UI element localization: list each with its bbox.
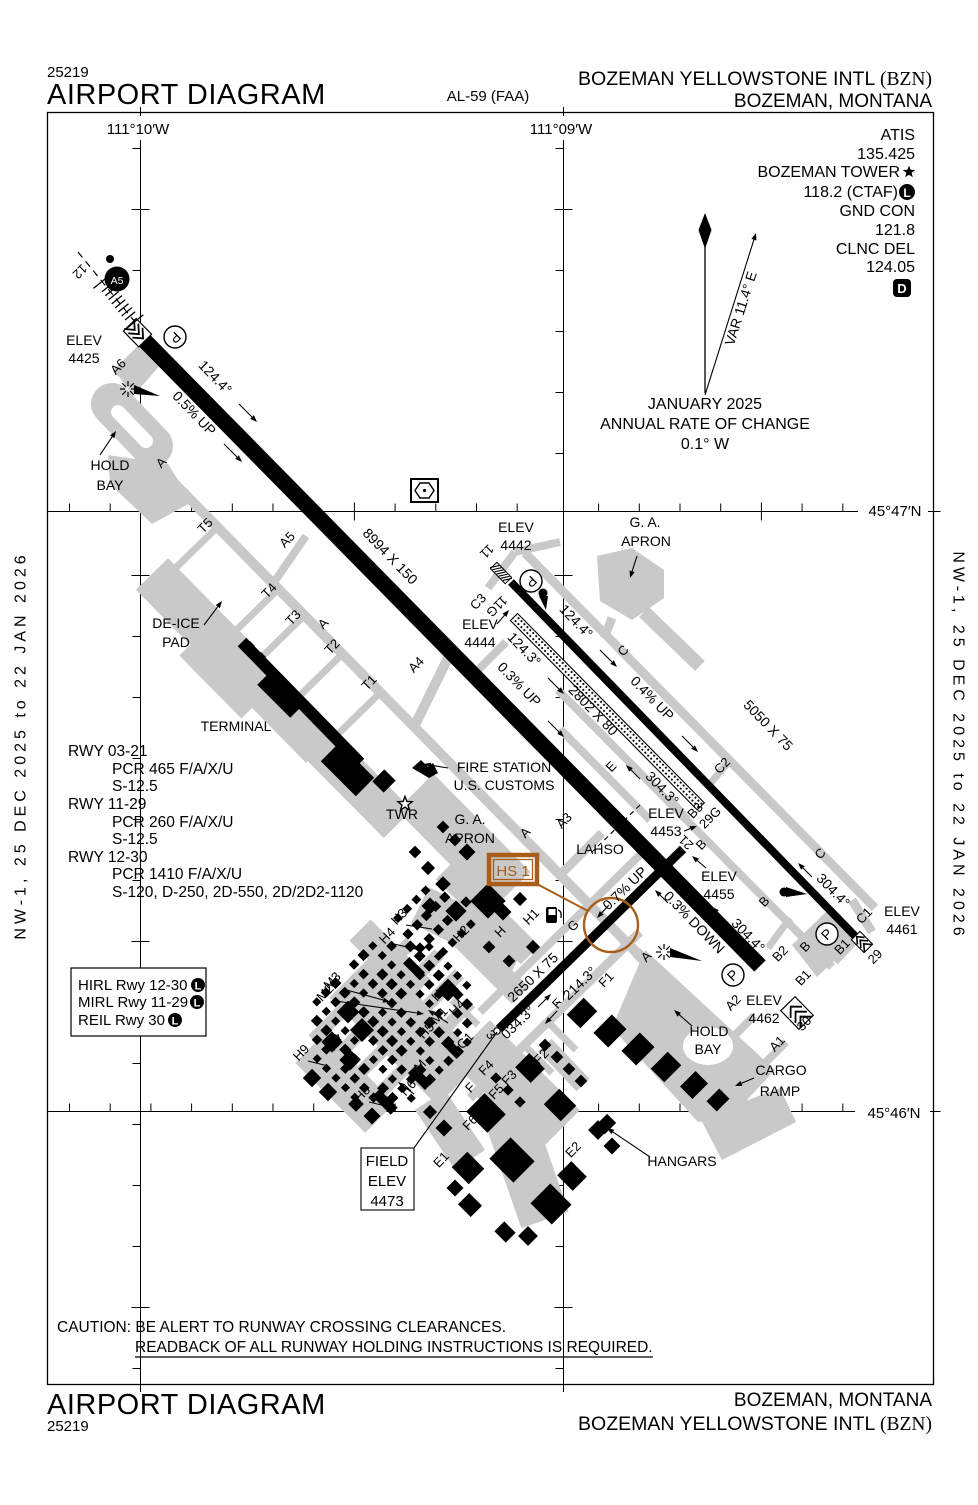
svg-text:REIL Rwy 30: REIL Rwy 30 — [78, 1012, 165, 1029]
svg-text:JANUARY 2025: JANUARY 2025 — [648, 396, 762, 413]
svg-text:4425: 4425 — [68, 350, 99, 366]
svg-text:ELEV: ELEV — [368, 1173, 406, 1190]
svg-text:G. A.: G. A. — [454, 811, 485, 827]
svg-text:RAMP: RAMP — [760, 1083, 800, 1099]
svg-text:S-120, D-250, 2D-550, 2D/2D2-1: S-120, D-250, 2D-550, 2D/2D2-1120 — [112, 884, 364, 901]
svg-text:U.S. CUSTOMS: U.S. CUSTOMS — [454, 777, 555, 793]
svg-text:ELEV: ELEV — [746, 992, 782, 1008]
svg-text:AIRPORT DIAGRAM: AIRPORT DIAGRAM — [47, 79, 326, 111]
svg-text:MIRL Rwy 11-29: MIRL Rwy 11-29 — [78, 994, 188, 1011]
svg-text:45°46′N: 45°46′N — [867, 1105, 920, 1122]
svg-text:ELEV: ELEV — [648, 805, 684, 821]
svg-text:APRON: APRON — [621, 533, 671, 549]
svg-text:HOLD: HOLD — [91, 457, 130, 473]
svg-text:L: L — [195, 981, 202, 993]
svg-text:FIRE STATION: FIRE STATION — [457, 759, 551, 775]
svg-text:G. A.: G. A. — [629, 514, 660, 530]
svg-text:25219: 25219 — [47, 1418, 89, 1435]
svg-text:L: L — [903, 186, 910, 200]
svg-text:ELEV: ELEV — [701, 868, 737, 884]
svg-text:CLNC DEL: CLNC DEL — [836, 241, 915, 258]
svg-text:S-12.5: S-12.5 — [112, 778, 158, 795]
svg-text:CARGO: CARGO — [755, 1062, 806, 1078]
svg-text:BOZEMAN TOWER: BOZEMAN TOWER — [757, 164, 900, 181]
svg-text:BAY: BAY — [695, 1041, 723, 1057]
svg-text:RWY 11-29: RWY 11-29 — [68, 796, 146, 813]
svg-text:L: L — [194, 998, 201, 1010]
svg-text:ANNUAL RATE OF CHANGE: ANNUAL RATE OF CHANGE — [600, 416, 810, 433]
svg-text:READBACK OF ALL RUNWAY HOLDING: READBACK OF ALL RUNWAY HOLDING INSTRUCTI… — [135, 1339, 653, 1356]
svg-text:PAD: PAD — [162, 634, 190, 650]
svg-text:4473: 4473 — [370, 1193, 403, 1210]
svg-text:PCR 1410 F/A/X/U: PCR 1410 F/A/X/U — [112, 866, 242, 883]
svg-text:PCR 260 F/A/X/U: PCR 260 F/A/X/U — [112, 814, 233, 831]
svg-text:A5: A5 — [111, 275, 124, 287]
svg-text:HOLD: HOLD — [690, 1023, 729, 1039]
svg-text:DE-ICE: DE-ICE — [152, 615, 199, 631]
svg-text:TERMINAL: TERMINAL — [201, 718, 272, 734]
svg-text:4461: 4461 — [886, 921, 917, 937]
svg-text:ELEV: ELEV — [884, 903, 920, 919]
svg-text:APRON: APRON — [445, 830, 495, 846]
svg-text:4442: 4442 — [500, 537, 531, 553]
svg-text:135.425: 135.425 — [857, 146, 915, 163]
svg-text:HS 1: HS 1 — [496, 863, 529, 880]
svg-text:BAY: BAY — [97, 477, 125, 493]
svg-text:L: L — [172, 1016, 179, 1028]
svg-text:AIRPORT DIAGRAM: AIRPORT DIAGRAM — [47, 1389, 326, 1421]
svg-text:D: D — [897, 281, 906, 296]
svg-text:S-12.5: S-12.5 — [112, 831, 158, 848]
svg-text:ELEV: ELEV — [498, 519, 534, 535]
svg-text:4455: 4455 — [703, 886, 734, 902]
svg-text:AL-59 (FAA): AL-59 (FAA) — [447, 88, 530, 105]
svg-text:TWR: TWR — [386, 806, 418, 822]
svg-text:RWY 03-21: RWY 03-21 — [68, 743, 148, 760]
svg-text:124.05: 124.05 — [866, 259, 915, 276]
svg-text:ELEV: ELEV — [66, 332, 102, 348]
svg-text:BOZEMAN, MONTANA: BOZEMAN, MONTANA — [734, 1390, 932, 1411]
svg-text:HANGARS: HANGARS — [647, 1153, 716, 1169]
svg-text:4444: 4444 — [464, 634, 495, 650]
svg-text:4462: 4462 — [748, 1010, 779, 1026]
svg-text:CAUTION: BE ALERT TO RUNWAY CR: CAUTION: BE ALERT TO RUNWAY CROSSING CLE… — [57, 1319, 506, 1336]
svg-text:PCR 465 F/A/X/U: PCR 465 F/A/X/U — [112, 761, 233, 778]
svg-text:HIRL Rwy 12-30: HIRL Rwy 12-30 — [78, 977, 187, 994]
svg-text:BOZEMAN YELLOWSTONE INTL (BZN): BOZEMAN YELLOWSTONE INTL (BZN) — [578, 68, 932, 90]
svg-text:ATIS: ATIS — [881, 127, 915, 144]
svg-text:111°10′W: 111°10′W — [107, 121, 170, 138]
svg-text:118.2 (CTAF): 118.2 (CTAF) — [803, 184, 898, 201]
svg-text:NW-1, 25 DEC 2025 to 22 JAN: NW-1, 25 DEC 2025 to 22 JAN 2026 — [950, 551, 967, 939]
svg-text:4453: 4453 — [650, 823, 681, 839]
svg-text:RWY 12-30: RWY 12-30 — [68, 849, 148, 866]
svg-text:GND CON: GND CON — [839, 203, 915, 220]
svg-text:BOZEMAN YELLOWSTONE INTL (BZN): BOZEMAN YELLOWSTONE INTL (BZN) — [578, 1413, 932, 1435]
svg-text:121.8: 121.8 — [875, 222, 915, 239]
svg-text:0.1° W: 0.1° W — [681, 436, 730, 453]
svg-text:111°09′W: 111°09′W — [530, 121, 593, 138]
svg-text:45°47′N: 45°47′N — [868, 503, 921, 520]
svg-text:NW-1, 25 DEC 2025 to 22 JAN: NW-1, 25 DEC 2025 to 22 JAN 2026 — [13, 551, 30, 939]
svg-text:BOZEMAN, MONTANA: BOZEMAN, MONTANA — [734, 91, 932, 112]
svg-text:FIELD: FIELD — [366, 1153, 409, 1170]
